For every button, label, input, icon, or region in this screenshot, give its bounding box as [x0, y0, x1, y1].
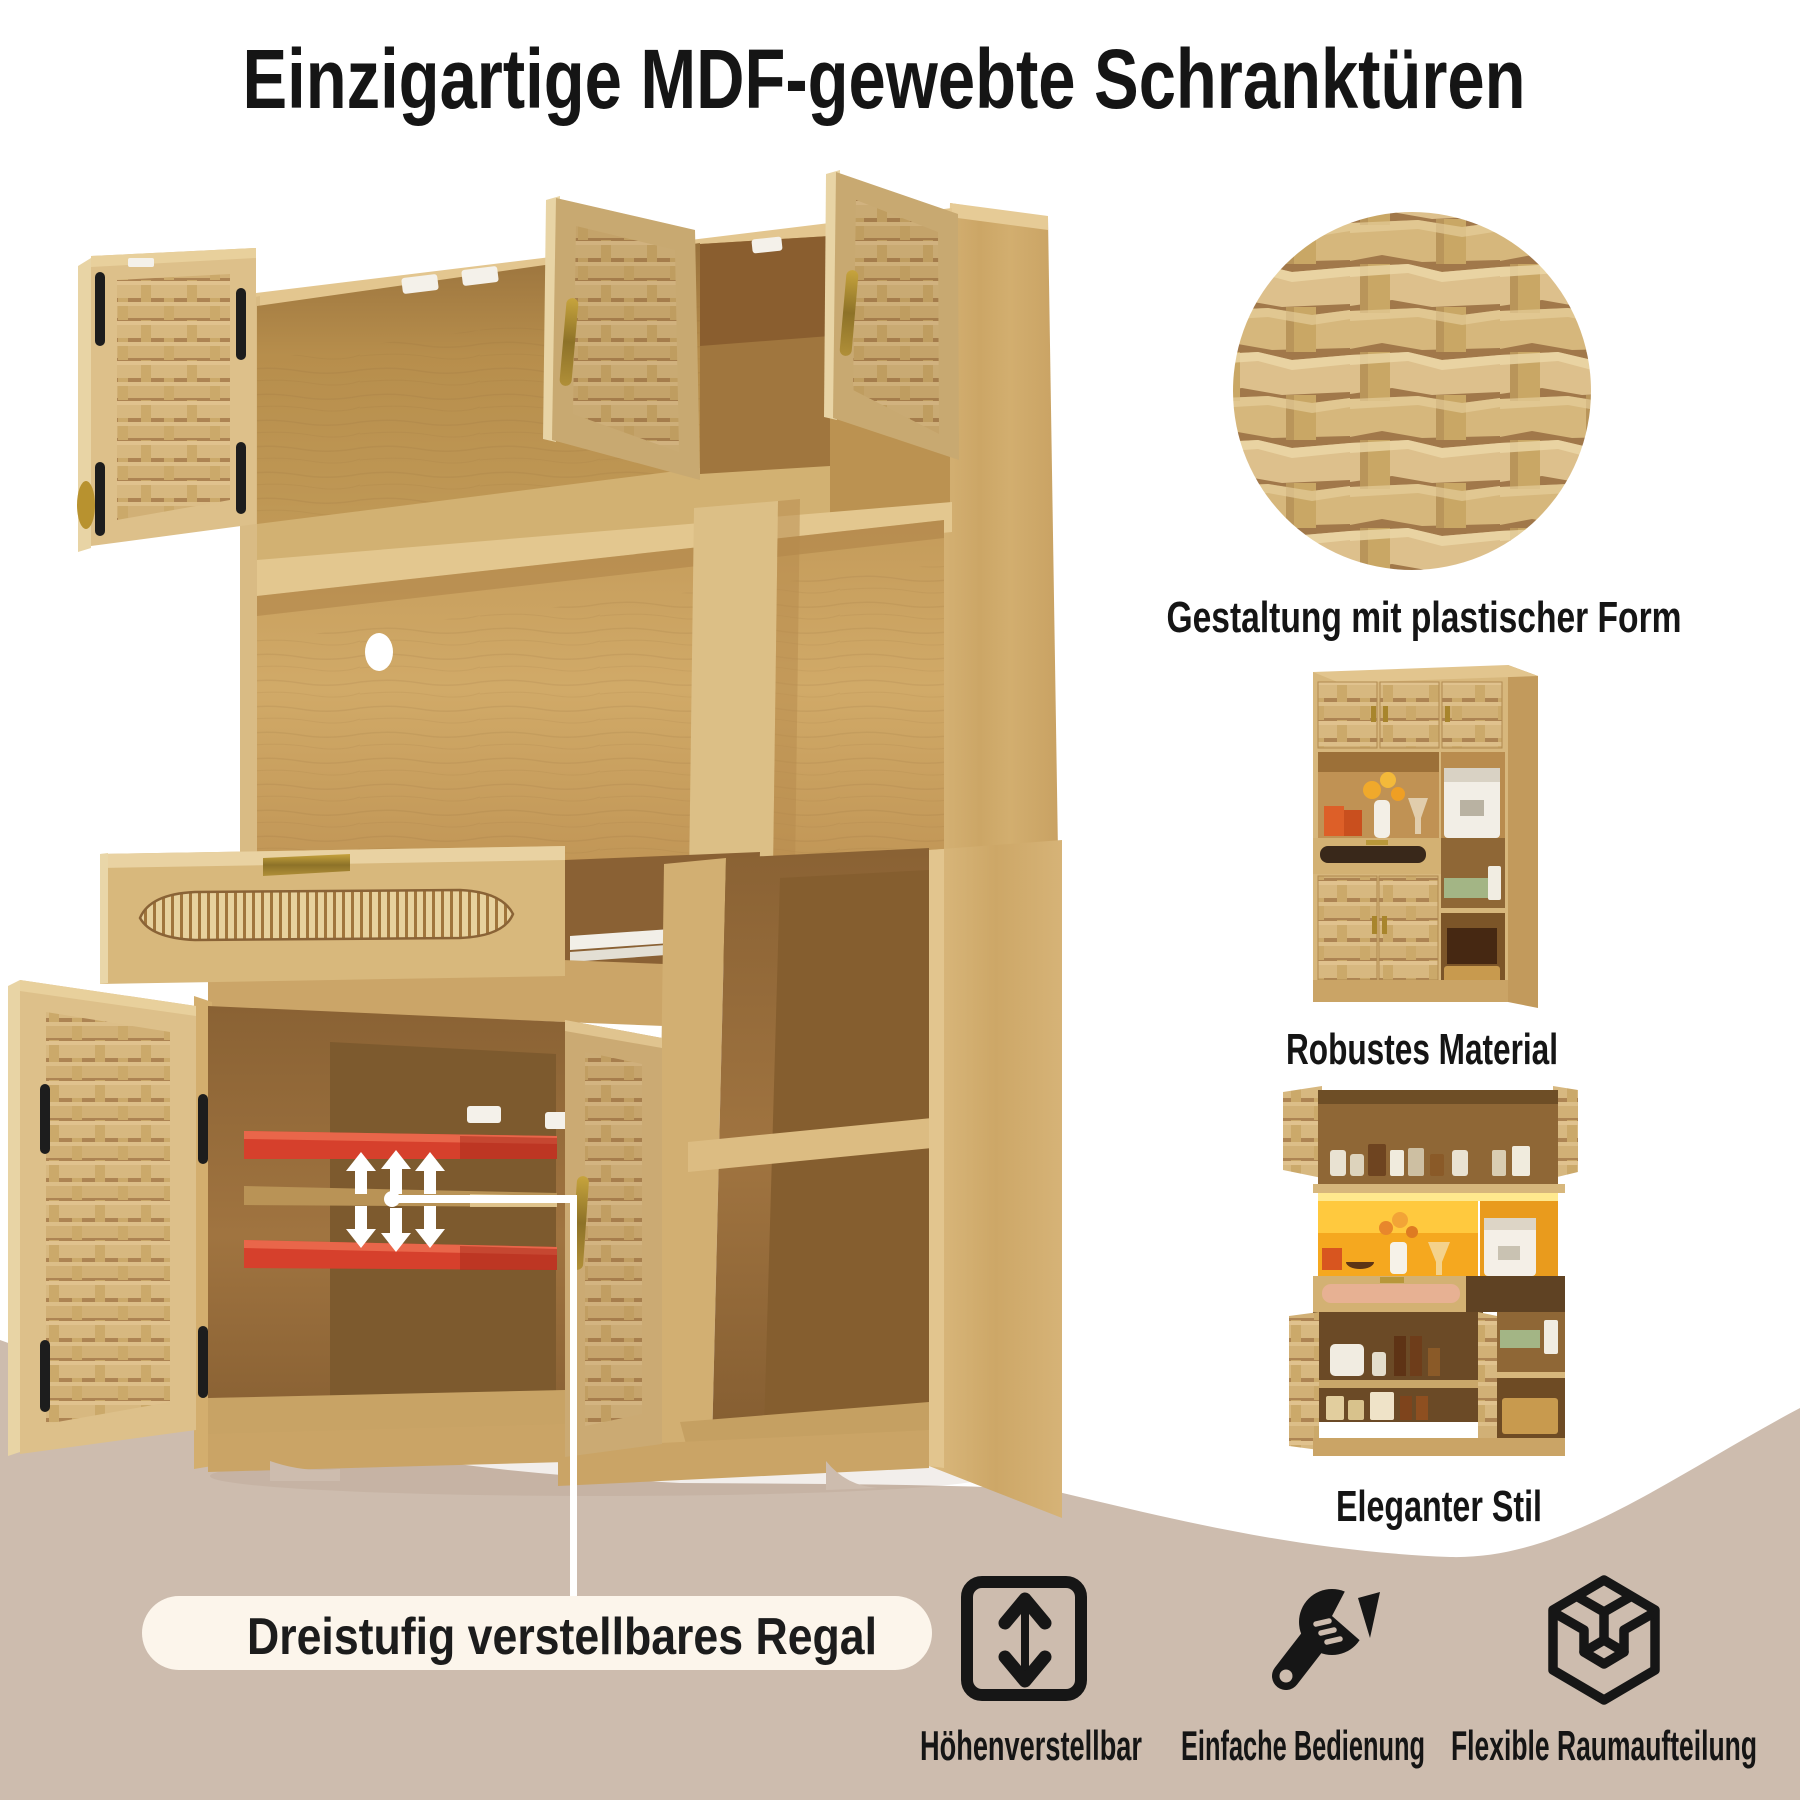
svg-text:Einzigartige MDF-gewebte Schra: Einzigartige MDF-gewebte Schranktüren — [243, 32, 1526, 126]
svg-text:Höhenverstellbar: Höhenverstellbar — [920, 1722, 1142, 1769]
svg-text:Eleganter Stil: Eleganter Stil — [1336, 1482, 1542, 1531]
svg-text:Robustes Material: Robustes Material — [1286, 1025, 1558, 1074]
svg-text:Einfache Bedienung: Einfache Bedienung — [1181, 1722, 1425, 1769]
svg-text:Gestaltung mit plastischer For: Gestaltung mit plastischer Form — [1167, 593, 1682, 642]
svg-text:Dreistufig verstellbares Regal: Dreistufig verstellbares Regal — [247, 1608, 877, 1666]
svg-text:Flexible Raumaufteilung: Flexible Raumaufteilung — [1451, 1722, 1757, 1769]
